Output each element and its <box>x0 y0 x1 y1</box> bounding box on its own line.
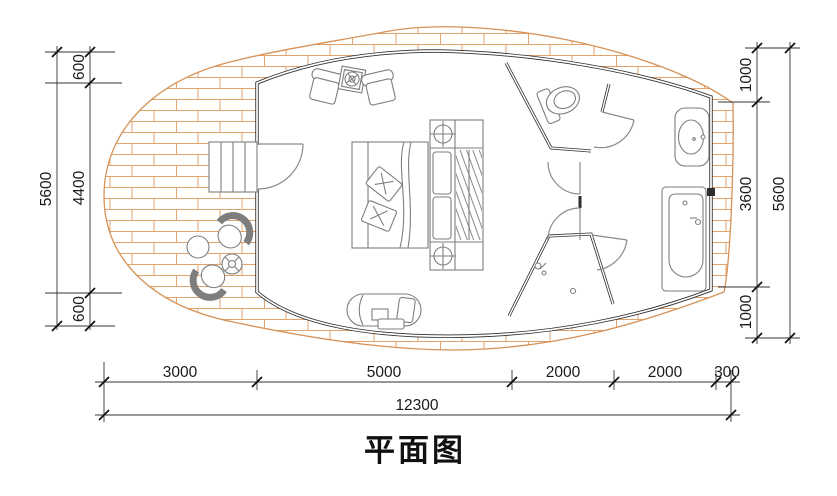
dim-right-total: 5600 <box>771 176 788 211</box>
bed <box>352 142 428 248</box>
dim-bottom-total: 12300 <box>395 397 438 414</box>
dim-right-seg-mid: 3600 <box>738 176 755 211</box>
dim-bottom-seg-4: 2000 <box>648 364 683 381</box>
drawing-title: 平面图 <box>364 433 466 468</box>
dim-bottom-seg-2: 5000 <box>367 364 402 381</box>
wall-column-marker <box>707 188 715 196</box>
wash-basin <box>675 108 709 166</box>
dimension-bottom-chain: 3000 5000 2000 2000 300 12300 <box>95 362 740 422</box>
dim-right-seg-top: 1000 <box>738 57 755 92</box>
dim-left-seg-mid: 4400 <box>71 170 88 205</box>
dim-left-total: 5600 <box>38 171 55 206</box>
dim-bottom-seg-1: 3000 <box>163 364 198 381</box>
dim-bottom-seg-5: 300 <box>714 364 740 381</box>
floor-plan-page: 600 4400 600 5600 1000 3600 1000 5600 <box>0 0 837 496</box>
wardrobe <box>430 120 483 270</box>
floor-drain-icon <box>571 289 576 294</box>
stairs <box>209 142 257 192</box>
chaise-longue <box>347 294 421 329</box>
round-table <box>187 236 209 258</box>
bathtub <box>662 187 706 291</box>
dim-left-seg-bottom: 600 <box>71 296 88 322</box>
potted-plant <box>222 254 242 274</box>
dim-bottom-seg-3: 2000 <box>546 364 581 381</box>
dim-right-seg-bottom: 1000 <box>738 294 755 329</box>
floor-plan-canvas: 600 4400 600 5600 1000 3600 1000 5600 <box>0 0 837 496</box>
dim-left-seg-top: 600 <box>71 54 88 80</box>
